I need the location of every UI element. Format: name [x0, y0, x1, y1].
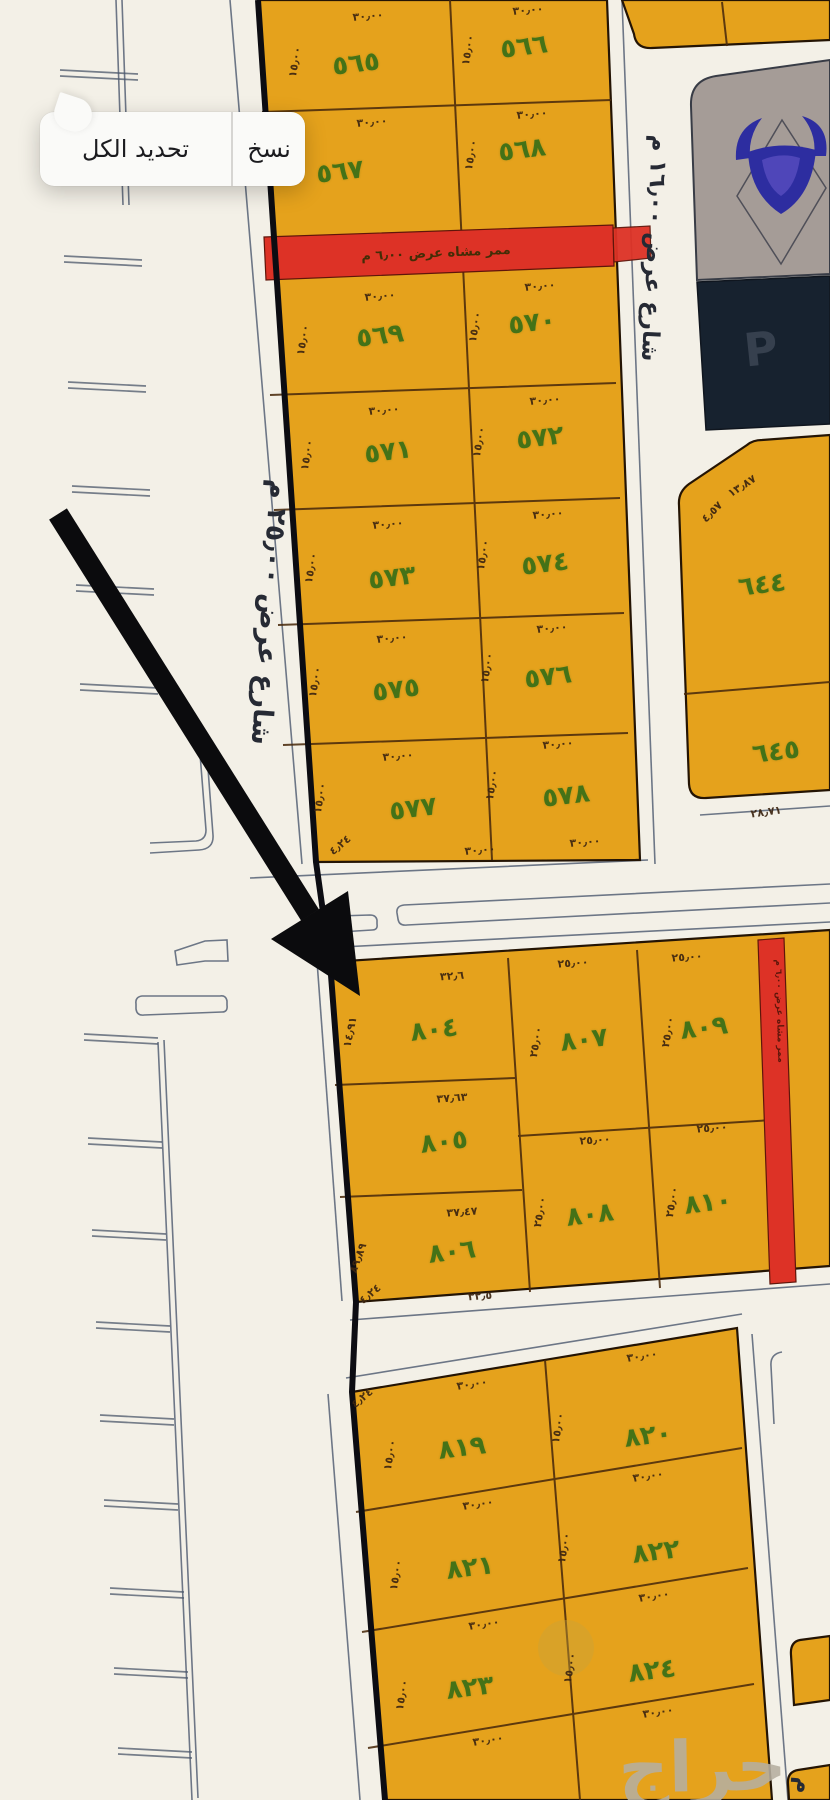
map-labels: ٥٦٥٥٦٦٥٦٧٥٦٨٥٦٩٥٧٠٥٧١٥٧٢٥٧٣٥٧٤٥٧٥٥٧٦٥٧٧٥…	[0, 0, 830, 1800]
haraj-watermark: حراج	[584, 1724, 820, 1800]
plot-number-821: ٨٢١	[445, 1550, 496, 1586]
plot-number-824: ٨٢٤	[627, 1653, 678, 1689]
dimension-label: ٣٠٫٠٠	[376, 630, 408, 646]
dimension-label: ٢٥٫٠٠	[527, 1026, 545, 1059]
dimension-label: ٣٠٫٠٠	[532, 506, 564, 522]
plot-number-575: ٥٧٥	[371, 672, 422, 708]
dimension-label: ٢٥٫٠٠	[659, 1016, 677, 1049]
plot-number-644: ٦٤٤	[737, 567, 788, 603]
dimension-label: ٣٠٫٠٠	[368, 402, 400, 418]
dimension-label: ٣٠٫٠٠	[364, 288, 396, 304]
dimension-label: ٣٧٫٦٣	[436, 1090, 468, 1105]
dimension-label: ٨٩٫٨٩	[347, 1241, 370, 1275]
dimension-label: ٣٠٫٠٠	[464, 842, 496, 858]
dimension-label: ١٥٫٠٠	[294, 324, 312, 357]
plot-number-566: ٥٦٦	[499, 29, 550, 65]
plot-number-810: ٨١٠	[683, 1185, 734, 1221]
dimension-label: ٣٠٫٠٠	[569, 834, 601, 850]
plot-number-820: ٨٢٠	[623, 1418, 674, 1454]
plot-number-806: ٨٠٦	[427, 1234, 478, 1270]
dimension-label: ٣٠٫٠٠	[632, 1467, 665, 1485]
plot-number-805: ٨٠٥	[419, 1124, 470, 1160]
dimension-label: ٣٠٫٠٠	[536, 620, 568, 636]
dimension-label: ١٥٫٠٠	[549, 1412, 567, 1445]
dimension-label: ٣٠٫٠٠	[626, 1347, 659, 1365]
plot-number-804: ٨٠٤	[409, 1012, 460, 1048]
plot-number-569: ٥٦٩	[355, 318, 406, 354]
dimension-label: ١٥٫٠٠	[459, 34, 477, 67]
plot-number-819: ٨١٩	[437, 1430, 488, 1466]
plot-number-570: ٥٧٠	[507, 305, 558, 341]
dimension-label: ١٥٫٠٠	[286, 46, 304, 79]
dimension-label: ٢٥٫٠٠	[531, 1196, 549, 1229]
plot-number-822: ٨٢٢	[631, 1534, 682, 1570]
dimension-label: ١٥٫٠٠	[298, 439, 316, 472]
dimension-label: ٤٫٢٤	[327, 832, 354, 858]
dimension-label: ٣٢٫٦	[439, 969, 464, 984]
plot-number-577: ٥٧٧	[388, 791, 439, 827]
dimension-label: ٣٠٫٠٠	[512, 2, 544, 18]
dimension-label: ١٥٫٠٠	[466, 311, 484, 344]
dimension-label: ٢٨٫٧١	[750, 803, 782, 820]
dimension-label: ١٥٫٠٠	[462, 139, 480, 172]
dimension-label: ٣٠٫٠٠	[516, 106, 548, 122]
dimension-label: ٣٠٫٠٠	[638, 1587, 671, 1605]
plot-number-823: ٨٢٣	[445, 1670, 496, 1706]
dimension-label: ١٥٫٠٠	[483, 769, 501, 802]
dimension-label: ٤٫٢٤	[349, 1385, 376, 1411]
plot-number-567: ٥٦٧	[315, 154, 366, 190]
context-menu: تحديد الكل نسخ	[40, 112, 305, 186]
dimension-label: ١٥٫٠٠	[474, 539, 492, 572]
dimension-label: ١٥٫٠٠	[393, 1679, 411, 1712]
dimension-label: ١٣٫٨٧	[725, 472, 758, 500]
dimension-label: ٣٠٫٠٠	[462, 1495, 495, 1513]
dimension-label: ٣٠٫٠٠	[356, 114, 388, 130]
dimension-label: ١٥٫٠٠	[302, 552, 320, 585]
plot-number-576: ٥٧٦	[523, 659, 574, 695]
plot-number-565: ٥٦٥	[331, 46, 382, 82]
dimension-label: ٢٥٫٠٠	[663, 1186, 681, 1219]
plot-number-571: ٥٧١	[363, 434, 414, 470]
dimension-label: ٣٠٫٠٠	[529, 392, 561, 408]
plot-number-568: ٥٦٨	[497, 132, 548, 168]
plot-number-578: ٥٧٨	[541, 778, 592, 814]
plot-number-645: ٦٤٥	[751, 734, 802, 770]
screenshot-root: ٥٦٥٥٦٦٥٦٧٥٦٨٥٦٩٥٧٠٥٧١٥٧٢٥٧٣٥٧٤٥٧٥٥٧٦٥٧٧٥…	[0, 0, 830, 1800]
dimension-label: ٤٫٢٤	[357, 1281, 384, 1307]
dimension-label: ٣٠٫٠٠	[524, 278, 556, 294]
dimension-label: ١٥٫٠٠	[478, 652, 496, 685]
plot-number-808: ٨٠٨	[565, 1197, 616, 1233]
dimension-label: ١٥٫٠٠	[555, 1532, 573, 1565]
dimension-label: ٢٥٫٠٠	[557, 955, 589, 970]
plot-number-572: ٥٧٢	[515, 420, 566, 456]
dimension-label: ٣٠٫٠٠	[468, 1615, 501, 1633]
plot-number-809: ٨٠٩	[679, 1010, 730, 1046]
dimension-label: ٢٥٫٠٠	[579, 1132, 611, 1147]
dimension-label: ٣٠٫٠٠	[456, 1375, 489, 1393]
copy-button[interactable]: نسخ	[233, 112, 305, 186]
stamp-letter: P	[741, 320, 780, 377]
dimension-label: ١٥٫٠٠	[381, 1439, 399, 1472]
dimension-label: ٢٥٫٠٠	[696, 1120, 728, 1135]
dimension-label: ١٥٫٠٠	[311, 782, 329, 815]
dimension-label: ١٥٫٠٠	[470, 426, 488, 459]
dimension-label: ١٤٫٩١	[340, 1016, 359, 1049]
dimension-label: ١٥٫٠٠	[306, 666, 324, 699]
dimension-label: ٣٠٫٠٠	[382, 748, 414, 764]
dimension-label: ١٥٫٠٠	[561, 1652, 579, 1685]
dimension-label: ٢٥٫٠٠	[671, 949, 703, 964]
plot-number-807: ٨٠٧	[559, 1022, 610, 1058]
dimension-label: ٣٢٫٥	[467, 1289, 492, 1304]
dimension-label: ٣٠٫٠٠	[642, 1703, 675, 1721]
dimension-label: ١٥٫٠٠	[387, 1559, 405, 1592]
dimension-label: ٣٠٫٠٠	[352, 8, 384, 24]
dimension-label: ٣٠٫٠٠	[472, 1731, 505, 1749]
plot-number-574: ٥٧٤	[520, 546, 571, 582]
plot-number-573: ٥٧٣	[367, 560, 418, 596]
select-all-button[interactable]: تحديد الكل	[40, 112, 231, 186]
dimension-label: ٤٫٥٧	[699, 499, 725, 525]
dimension-label: ٣٠٫٠٠	[542, 736, 574, 752]
dimension-label: ٣٠٫٠٠	[372, 516, 404, 532]
dimension-label: ٣٧٫٤٧	[446, 1204, 478, 1219]
